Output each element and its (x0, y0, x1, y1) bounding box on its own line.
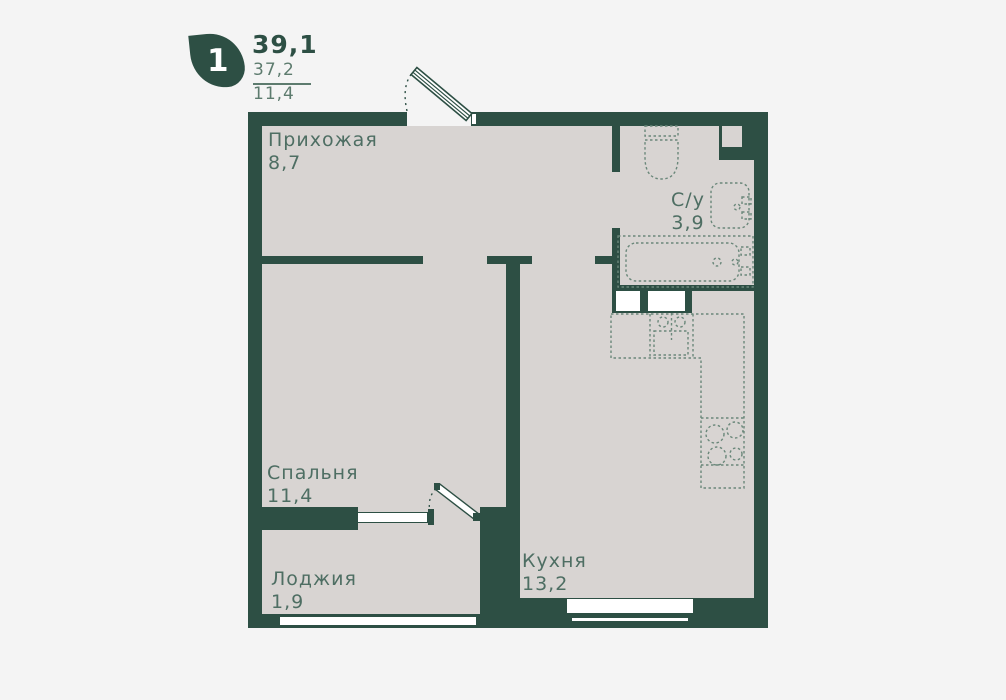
wall-bedroom-kitchen (506, 256, 520, 508)
wall-niche-a (616, 291, 640, 311)
wall-hall-bedroom-a (262, 256, 423, 264)
rooms-count: 1 (207, 43, 229, 79)
room-label-loggia: Лоджия 1,9 (271, 568, 357, 614)
room-area: 1,9 (271, 591, 357, 614)
kitchen-window (566, 598, 694, 614)
room-label-hallway: Прихожая 8,7 (268, 129, 378, 175)
window-jamb (428, 509, 434, 525)
wall-top-right (471, 112, 768, 126)
vent-shaft-left-line (719, 126, 722, 147)
room-area: 8,7 (268, 152, 378, 175)
kitchen-window-sill (571, 617, 689, 622)
loggia-window (279, 616, 477, 626)
room-area: 13,2 (522, 573, 587, 596)
wall-left (248, 112, 262, 628)
vent-shaft-bottom (719, 147, 754, 160)
room-label-bedroom: Спальня 11,4 (267, 462, 359, 508)
bedroom-window (357, 512, 428, 523)
living-area-value: 37,2 (253, 60, 311, 85)
floorplan-page: { "legend": { "rooms_count": "1", "total… (0, 0, 1006, 700)
entry-door-icon (405, 68, 472, 121)
room-name: Лоджия (271, 568, 357, 590)
wall-bedroom-loggia-left (248, 507, 358, 530)
wall-loggia-right (480, 507, 520, 628)
room-area: 11,4 (267, 485, 359, 508)
wall-bath-left-lower (612, 228, 620, 291)
rooms-count-badge: 1 (188, 30, 246, 90)
entry-jamb-right (471, 113, 477, 125)
wall-bath-left-upper (612, 126, 620, 172)
room-name: Спальня (267, 462, 359, 484)
wall-right (754, 112, 768, 628)
wall-top-left (248, 112, 406, 126)
entry-jamb-left (403, 112, 407, 126)
room-area: 3,9 (663, 212, 713, 235)
kitchen-area-value: 11,4 (253, 84, 295, 104)
room-name: Кухня (522, 550, 587, 572)
wall-hall-bath-stub (595, 256, 612, 264)
room-name: Прихожая (268, 129, 378, 151)
room-label-bathroom: С/у 3,9 (663, 189, 713, 235)
room-name: С/у (671, 189, 705, 211)
room-label-kitchen: Кухня 13,2 (522, 550, 587, 596)
total-area-value: 39,1 (252, 30, 318, 59)
wall-niche-b (648, 291, 685, 311)
